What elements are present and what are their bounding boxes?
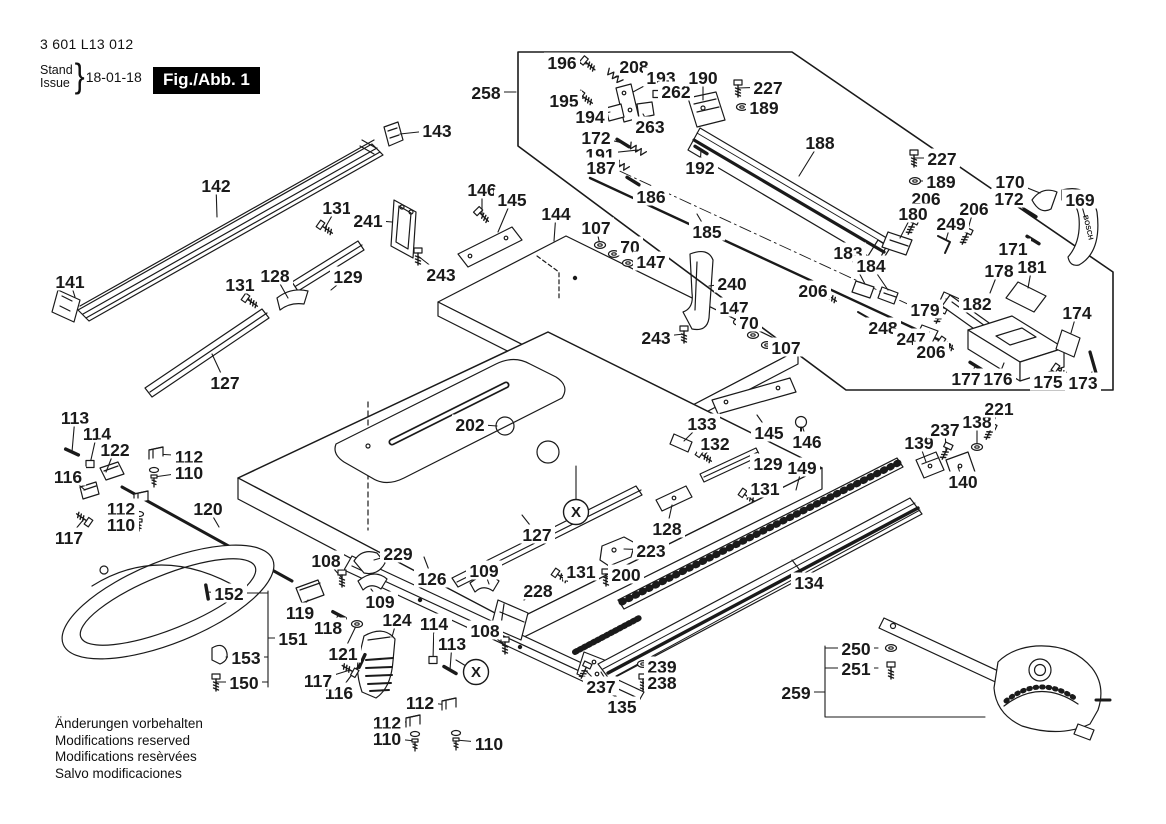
part-callout: 118 [314,618,342,638]
part-callout: 113 [438,634,466,654]
screwv-icon [734,80,742,97]
part-callout: 117 [304,671,332,691]
part-callout: 134 [794,573,823,593]
part-callout: 174 [1062,303,1091,323]
part-callout: 206 [798,281,827,301]
part-callout: 128 [652,519,681,539]
part-callout: 227 [927,149,956,169]
modification-notice: Änderungen vorbehalten Modifications res… [55,716,203,782]
part-callout: 131 [566,562,595,582]
part-callout: 119 [286,603,314,623]
part-callout: 175 [1033,372,1062,392]
part-callout: 142 [201,176,230,196]
part-callout: 228 [523,581,552,601]
washer-icon [886,645,897,652]
title-block: 3 601 L13 012 Stand Issue } 18-01-18 [40,36,142,94]
part-callout: 109 [365,592,394,612]
washer-icon [910,178,921,185]
part-callout: 194 [575,107,604,127]
part-callout: 243 [426,265,455,285]
bracket-183 [852,281,874,298]
angle-249 [938,236,950,253]
notice-line-en: Modifications reserved [55,733,203,750]
part-callout: 124 [382,610,411,630]
part-callout: 121 [328,644,357,664]
exploded-view-drawing: BOSCH 2581962081932621902271891951942631… [0,0,1166,824]
part-callout: 146 [467,180,496,200]
part-callout: 185 [692,222,721,242]
washer-icon [737,104,748,111]
screwv-icon [338,570,346,587]
part-callout: 179 [910,300,939,320]
label-plate-181 [1006,282,1046,312]
part-callout: 186 [636,187,665,207]
brace-glyph: } [75,57,85,96]
part-callout: 107 [771,338,800,358]
miter-gauge-259 [879,618,1110,740]
part-callout: 145 [754,423,783,443]
part-callout: 120 [193,499,222,519]
part-callout: 126 [417,569,446,589]
spring-icon [628,142,646,157]
angle-139 [916,452,944,478]
part-callout: 240 [717,274,746,294]
part-callout: 206 [959,199,988,219]
part-callout: 258 [471,83,500,103]
part-callout: 143 [422,121,451,141]
part-callout: 151 [278,629,307,649]
part-callout: 237 [930,420,959,440]
part-callout: 129 [333,267,362,287]
part-callout: 127 [210,373,239,393]
plate-145-left [458,227,522,267]
part-callout: 140 [948,472,977,492]
screwv-icon [887,662,895,679]
part-callout: 238 [647,673,676,693]
plate-180 [882,232,912,255]
part-callout: 241 [353,211,382,231]
part-callout: 145 [497,190,526,210]
part-callout: 182 [962,294,991,314]
part-callout: 110 [107,515,135,535]
wedge-263 [637,102,654,118]
part-callout: 180 [898,204,927,224]
part-callout: 152 [214,584,243,604]
issue-date: 18-01-18 [86,69,142,85]
issue-label: Issue [40,77,73,90]
part-callout: 250 [841,639,870,659]
part-callout: 122 [100,440,129,460]
part-callout: 116 [54,467,82,487]
part-callout: 114 [420,614,448,634]
part-callout: 177 [951,369,980,389]
part-callout: 131 [225,275,254,295]
part-callout: 107 [581,218,610,238]
part-callout: 131 [750,479,779,499]
part-callout: 108 [470,621,499,641]
notice-line-fr: Modifications resèrvées [55,749,203,766]
screwv-icon [414,248,422,265]
parts-diagram-page: BOSCH 2581962081932621902271891951942631… [0,0,1166,824]
part-callout: 128 [260,266,289,286]
part-callout: 229 [383,544,412,564]
nut-icon [86,461,94,468]
screw-icon [74,511,93,527]
screw-icon [474,207,492,225]
part-callout: 227 [753,78,782,98]
part-callout: 176 [983,369,1012,389]
notice-line-de: Änderungen vorbehalten [55,716,203,733]
cylinder-119 [296,580,324,603]
pin-icon [206,585,208,599]
support-bracket-240 [683,252,713,330]
part-callout: 131 [322,198,351,218]
part-callout: 129 [753,454,782,474]
part-callout: 206 [916,342,945,362]
pin-icon [617,139,629,146]
issue-row: Stand Issue } 18-01-18 [40,60,142,94]
part-callout: 146 [792,432,821,452]
washer-icon [972,444,983,451]
screw-icon [579,56,597,73]
part-callout: 184 [856,256,885,276]
part-callout: 181 [1017,257,1046,277]
cam-170 [1032,190,1057,211]
boltv-icon [452,731,461,751]
clip-128-left [277,290,308,310]
clip-icon [149,447,163,459]
part-callout: 169 [1065,190,1094,210]
part-callout: 132 [700,434,729,454]
document-part-number: 3 601 L13 012 [40,36,142,52]
detail-marker-label: X [471,664,481,681]
part-callout: 189 [749,98,778,118]
knob-124 [358,631,395,698]
part-callout: 221 [984,399,1013,419]
u-bracket-241 [391,200,416,258]
part-callout: 202 [455,415,484,435]
washer-icon [352,621,363,628]
part-callout: 187 [586,158,615,178]
part-callout: 171 [998,239,1027,259]
washer-icon [595,242,606,249]
nut-icon [429,657,437,664]
part-callout: 178 [984,261,1013,281]
boltv-icon [150,468,159,488]
clip-icon [442,698,456,710]
part-callout: 110 [475,734,503,754]
part-callout: 108 [311,551,340,571]
block-122 [100,462,124,480]
part-callout: 112 [406,693,434,713]
part-callout: 109 [469,561,498,581]
clip-icon [406,715,420,727]
part-callout: 147 [636,252,665,272]
part-callout: 70 [739,313,759,333]
part-callout: 243 [641,328,670,348]
part-callout: 144 [541,204,570,224]
part-callout: 150 [229,673,258,693]
part-callout: 251 [841,659,870,679]
part-callout: 127 [522,525,551,545]
screw-icon [241,293,260,309]
cover-153-clamp [212,645,227,664]
part-callout: 196 [547,53,576,73]
screw-icon [340,662,359,677]
part-callout: 190 [688,68,717,88]
part-callout: 117 [55,528,83,548]
part-callout: 172 [994,189,1023,209]
screw-icon [316,220,335,236]
part-callout: 200 [611,565,640,585]
detail-marker-label: X [571,504,581,521]
part-callout: 135 [607,697,636,717]
part-callout: 141 [55,272,84,292]
notice-line-es: Salvo modificaciones [55,766,203,783]
end-cap-141 [52,290,80,322]
part-callout: 110 [175,463,203,483]
part-callout: 149 [787,458,816,478]
figure-label-badge: Fig./Abb. 1 [153,67,260,94]
part-callout: 223 [636,541,665,561]
part-callout: 263 [635,117,664,137]
part-callout: 173 [1068,373,1097,393]
part-callout: 192 [685,158,714,178]
part-callout: 153 [231,648,260,668]
part-callout: 188 [805,133,834,153]
part-callout: 259 [781,683,810,703]
pin-icon [627,177,639,184]
part-callout: 133 [687,414,716,434]
washer-icon [623,260,634,267]
boltv-icon [411,732,420,752]
part-callout: 237 [586,677,615,697]
part-callout: 110 [373,729,401,749]
